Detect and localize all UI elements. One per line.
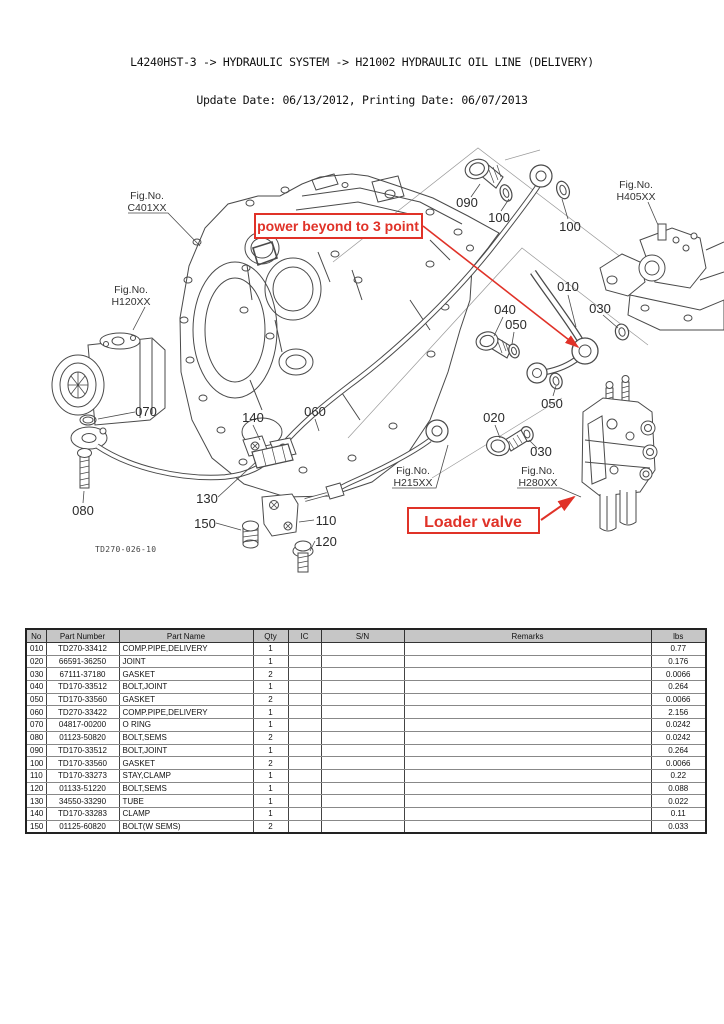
table-row: 03067111-37180GASKET20.0066: [26, 668, 706, 681]
cell-ic: [288, 744, 321, 757]
svg-text:C401XX: C401XX: [127, 202, 166, 214]
cell-sn: [321, 769, 404, 782]
cell-sn: [321, 706, 404, 719]
cell-qty: 2: [253, 757, 288, 770]
cell-ic: [288, 655, 321, 668]
cell-part-number: 67111-37180: [46, 668, 119, 681]
fig-label-h280: Fig.No. H280XX: [518, 465, 557, 489]
cell-sn: [321, 693, 404, 706]
svg-text:Fig.No.: Fig.No.: [130, 190, 164, 202]
col-header-remarks: Remarks: [404, 629, 651, 643]
cell-remarks: [404, 820, 651, 833]
cell-qty: 2: [253, 693, 288, 706]
cell-part-name: GASKET: [119, 693, 253, 706]
svg-text:H405XX: H405XX: [616, 191, 655, 203]
loader-valve-block: [582, 376, 657, 532]
drawing-number: TD270-026-10: [95, 545, 156, 554]
svg-text:Fig.No.: Fig.No.: [396, 465, 430, 477]
cell-sn: [321, 795, 404, 808]
cell-part-name: BOLT,SEMS: [119, 731, 253, 744]
cell-qty: 1: [253, 706, 288, 719]
label-150: 150: [194, 516, 216, 531]
cell-qty: 1: [253, 681, 288, 694]
cell-lbs: 0.0242: [651, 719, 706, 732]
loader-valve-arrow: [541, 497, 574, 520]
label-120: 120: [315, 534, 337, 549]
svg-text:Fig.No.: Fig.No.: [521, 465, 555, 477]
col-header-ic: IC: [288, 629, 321, 643]
cell-sn: [321, 744, 404, 757]
power-beyond-callout-text: power beyond to 3 point: [257, 218, 419, 234]
cell-lbs: 0.77: [651, 643, 706, 656]
cell-ic: [288, 681, 321, 694]
cell-qty: 1: [253, 782, 288, 795]
cell-part-number: TD170-33283: [46, 807, 119, 820]
cell-sn: [321, 807, 404, 820]
cell-ic: [288, 706, 321, 719]
cell-part-number: TD170-33273: [46, 769, 119, 782]
cell-remarks: [404, 769, 651, 782]
catalog-page: L4240HST-3 -> HYDRAULIC SYSTEM -> H21002…: [0, 0, 724, 1024]
cell-qty: 1: [253, 655, 288, 668]
cell-sn: [321, 655, 404, 668]
washer-100-left: [498, 183, 514, 203]
label-050-lower: 050: [541, 396, 563, 411]
cell-part-number: TD270-33422: [46, 706, 119, 719]
cell-part-name: COMP.PIPE,DELIVERY: [119, 643, 253, 656]
exploded-parts-diagram: 090 100 100 010 030 040 050 050 020 030 …: [0, 0, 724, 616]
cell-no: 110: [26, 769, 46, 782]
cell-sn: [321, 681, 404, 694]
bolt-020: [485, 430, 527, 458]
table-row: 060TD270-33422COMP.PIPE,DELIVERY12.156: [26, 706, 706, 719]
cell-sn: [321, 820, 404, 833]
cell-part-name: TUBE: [119, 795, 253, 808]
cell-ic: [288, 719, 321, 732]
cell-ic: [288, 820, 321, 833]
cell-lbs: 0.264: [651, 744, 706, 757]
table-row: 090TD170-33512BOLT,JOINT10.264: [26, 744, 706, 757]
table-row: 07004817-00200O RING10.0242: [26, 719, 706, 732]
cell-remarks: [404, 719, 651, 732]
cell-sn: [321, 782, 404, 795]
cell-remarks: [404, 706, 651, 719]
hydraulic-pump: [52, 333, 165, 449]
cell-ic: [288, 693, 321, 706]
cell-sn: [321, 757, 404, 770]
cell-remarks: [404, 731, 651, 744]
cell-no: 130: [26, 795, 46, 808]
parts-table: No Part Number Part Name Qty IC S/N Rema…: [25, 628, 707, 834]
cell-part-name: JOINT: [119, 655, 253, 668]
cell-no: 120: [26, 782, 46, 795]
cell-remarks: [404, 757, 651, 770]
cell-qty: 2: [253, 820, 288, 833]
fig-label-h405: Fig.No. H405XX: [616, 179, 655, 203]
cell-part-name: COMP.PIPE,DELIVERY: [119, 706, 253, 719]
col-header-no: No: [26, 629, 46, 643]
cell-remarks: [404, 681, 651, 694]
cell-qty: 1: [253, 643, 288, 656]
valve-h405: [600, 224, 724, 330]
cell-qty: 2: [253, 731, 288, 744]
cell-lbs: 0.0066: [651, 668, 706, 681]
cell-part-name: BOLT,JOINT: [119, 744, 253, 757]
bolt-040: [474, 329, 512, 358]
washer-050-lower: [548, 372, 564, 391]
cell-remarks: [404, 795, 651, 808]
label-030-lower: 030: [530, 444, 552, 459]
cell-sn: [321, 719, 404, 732]
fig-label-h215: Fig.No. H215XX: [393, 465, 432, 489]
table-row: 13034550-33290TUBE10.022: [26, 795, 706, 808]
cell-lbs: 0.0066: [651, 757, 706, 770]
cell-part-name: O RING: [119, 719, 253, 732]
cell-remarks: [404, 655, 651, 668]
svg-text:Fig.No.: Fig.No.: [619, 179, 653, 191]
cell-ic: [288, 769, 321, 782]
cell-no: 040: [26, 681, 46, 694]
cell-ic: [288, 668, 321, 681]
stay-110: [262, 494, 298, 536]
fig-label-h120: Fig.No. H120XX: [111, 284, 150, 308]
power-beyond-arrow: [423, 226, 578, 347]
cell-no: 140: [26, 807, 46, 820]
cell-part-number: 01125-60820: [46, 820, 119, 833]
cell-lbs: 0.264: [651, 681, 706, 694]
cell-qty: 1: [253, 769, 288, 782]
svg-text:H280XX: H280XX: [518, 477, 557, 489]
cell-remarks: [404, 807, 651, 820]
cell-no: 050: [26, 693, 46, 706]
cell-qty: 1: [253, 744, 288, 757]
cell-remarks: [404, 782, 651, 795]
cell-ic: [288, 782, 321, 795]
svg-text:H215XX: H215XX: [393, 477, 432, 489]
bolt-120: [293, 541, 313, 572]
label-090: 090: [456, 195, 478, 210]
cell-lbs: 0.176: [651, 655, 706, 668]
cell-no: 100: [26, 757, 46, 770]
table-row: 040TD170-33512BOLT,JOINT10.264: [26, 681, 706, 694]
cell-qty: 1: [253, 719, 288, 732]
label-100-left: 100: [488, 210, 510, 225]
label-020: 020: [483, 410, 505, 425]
cell-no: 070: [26, 719, 46, 732]
cell-part-number: 34550-33290: [46, 795, 119, 808]
cell-sn: [321, 731, 404, 744]
cell-lbs: 0.22: [651, 769, 706, 782]
cell-remarks: [404, 643, 651, 656]
table-row: 12001133-51220BOLT,SEMS10.088: [26, 782, 706, 795]
label-080: 080: [72, 503, 94, 518]
cell-part-name: CLAMP: [119, 807, 253, 820]
col-header-qty: Qty: [253, 629, 288, 643]
table-header-row: No Part Number Part Name Qty IC S/N Rema…: [26, 629, 706, 643]
bolt-090: [463, 156, 503, 188]
cell-sn: [321, 643, 404, 656]
cell-part-number: TD270-33412: [46, 643, 119, 656]
cell-ic: [288, 731, 321, 744]
cell-remarks: [404, 693, 651, 706]
cell-part-number: TD170-33512: [46, 744, 119, 757]
cell-ic: [288, 807, 321, 820]
col-header-lbs: lbs: [651, 629, 706, 643]
label-110: 110: [316, 513, 337, 528]
col-header-part-name: Part Name: [119, 629, 253, 643]
cell-lbs: 0.022: [651, 795, 706, 808]
cell-lbs: 0.088: [651, 782, 706, 795]
cell-part-name: BOLT,JOINT: [119, 681, 253, 694]
cell-part-number: 01133-51220: [46, 782, 119, 795]
cell-part-number: TD170-33512: [46, 681, 119, 694]
parts-table-container: No Part Number Part Name Qty IC S/N Rema…: [25, 628, 705, 834]
cell-lbs: 0.11: [651, 807, 706, 820]
label-050-upper: 050: [505, 317, 527, 332]
label-130: 130: [196, 491, 218, 506]
cell-lbs: 2.156: [651, 706, 706, 719]
cell-part-number: 01123-50820: [46, 731, 119, 744]
cell-no: 030: [26, 668, 46, 681]
cell-qty: 1: [253, 807, 288, 820]
label-010: 010: [557, 279, 579, 294]
cell-no: 090: [26, 744, 46, 757]
cell-part-name: GASKET: [119, 757, 253, 770]
cell-ic: [288, 643, 321, 656]
cell-lbs: 0.033: [651, 820, 706, 833]
label-030-upper: 030: [589, 301, 611, 316]
table-row: 140TD170-33283CLAMP10.11: [26, 807, 706, 820]
label-070: 070: [135, 404, 157, 419]
table-row: 050TD170-33560GASKET20.0066: [26, 693, 706, 706]
fig-label-c401: Fig.No. C401XX: [127, 190, 166, 214]
bolt-150: [243, 521, 259, 548]
loader-valve-callout-text: Loader valve: [424, 514, 522, 531]
cell-part-number: 04817-00200: [46, 719, 119, 732]
col-header-part-number: Part Number: [46, 629, 119, 643]
label-060: 060: [304, 404, 326, 419]
cell-part-number: 66591-36250: [46, 655, 119, 668]
svg-text:Fig.No.: Fig.No.: [114, 284, 148, 296]
cell-remarks: [404, 668, 651, 681]
label-140: 140: [242, 410, 264, 425]
table-row: 15001125-60820BOLT(W SEMS)20.033: [26, 820, 706, 833]
table-row: 010TD270-33412COMP.PIPE,DELIVERY10.77: [26, 643, 706, 656]
cell-no: 060: [26, 706, 46, 719]
washer-100-right: [554, 179, 571, 200]
cell-ic: [288, 757, 321, 770]
cell-no: 150: [26, 820, 46, 833]
cell-part-name: BOLT,SEMS: [119, 782, 253, 795]
cell-sn: [321, 668, 404, 681]
cell-part-name: STAY,CLAMP: [119, 769, 253, 782]
cell-remarks: [404, 744, 651, 757]
cell-part-number: TD170-33560: [46, 693, 119, 706]
cell-part-name: GASKET: [119, 668, 253, 681]
table-row: 100TD170-33560GASKET20.0066: [26, 757, 706, 770]
label-040: 040: [494, 302, 516, 317]
cell-qty: 1: [253, 795, 288, 808]
cell-part-name: BOLT(W SEMS): [119, 820, 253, 833]
table-row: 02066591-36250JOINT10.176: [26, 655, 706, 668]
table-row: 110TD170-33273STAY,CLAMP10.22: [26, 769, 706, 782]
svg-text:H120XX: H120XX: [111, 296, 150, 308]
label-100-right: 100: [559, 219, 581, 234]
cell-no: 080: [26, 731, 46, 744]
cell-no: 020: [26, 655, 46, 668]
cell-ic: [288, 795, 321, 808]
cell-part-number: TD170-33560: [46, 757, 119, 770]
cell-lbs: 0.0066: [651, 693, 706, 706]
table-row: 08001123-50820BOLT,SEMS20.0242: [26, 731, 706, 744]
cell-qty: 2: [253, 668, 288, 681]
cell-no: 010: [26, 643, 46, 656]
cell-lbs: 0.0242: [651, 731, 706, 744]
col-header-sn: S/N: [321, 629, 404, 643]
bolt-080: [78, 449, 92, 489]
washer-030-upper: [614, 323, 631, 342]
